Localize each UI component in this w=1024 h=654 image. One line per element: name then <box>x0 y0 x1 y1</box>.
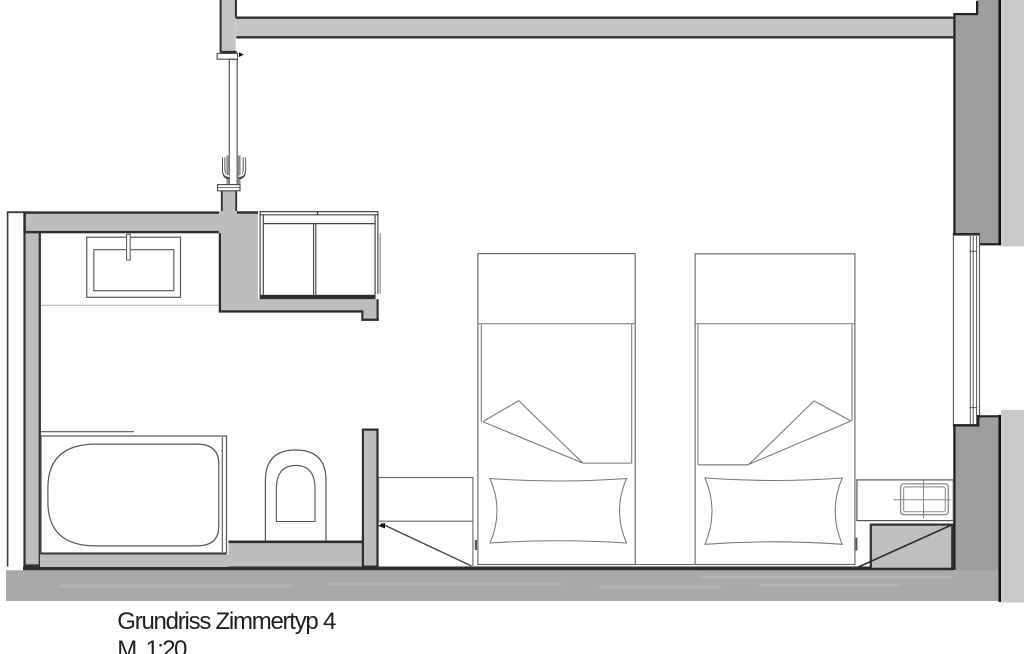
svg-text:Grundriss Zimmertyp 4: Grundriss Zimmertyp 4 <box>117 608 336 635</box>
svg-text:M. 1:20: M. 1:20 <box>117 636 187 654</box>
